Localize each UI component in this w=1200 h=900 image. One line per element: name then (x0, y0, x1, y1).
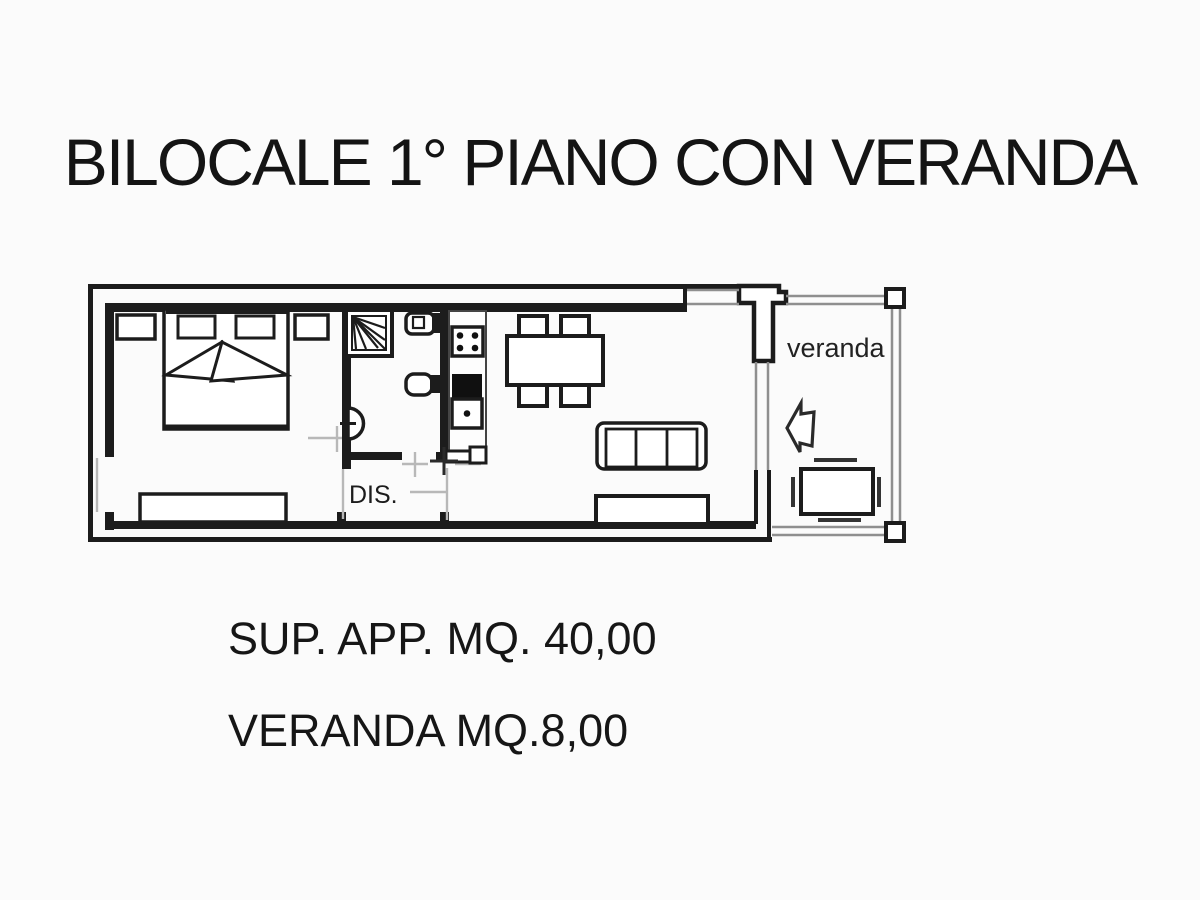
sideboard-symbol (596, 496, 708, 524)
veranda-post-bottom (886, 523, 904, 541)
sofa-cushions (606, 429, 697, 467)
wall-left-outer (88, 284, 93, 542)
nightstand-right-symbol (295, 315, 328, 339)
wall-left-inner (105, 303, 114, 457)
veranda-area (787, 403, 879, 520)
wall-right-inner-low (754, 470, 758, 524)
wall-pier-t (739, 286, 786, 361)
bidet-tank (430, 375, 440, 393)
kitchen-sink-symbol (452, 374, 482, 399)
dresser-symbol (140, 494, 286, 522)
bathroom (340, 310, 442, 439)
toilet-tank (432, 313, 442, 333)
veranda-table-symbol (801, 469, 873, 514)
nightstand-left-symbol (117, 315, 155, 339)
bed-headboard (166, 307, 287, 314)
dining-table-symbol (507, 336, 603, 385)
veranda-post-top (886, 289, 904, 307)
wall-bottom-outer (88, 537, 772, 542)
bed-pillow-left (178, 316, 215, 338)
veranda-label: veranda (787, 333, 886, 363)
entrance-arrow-icon (787, 403, 814, 452)
bedroom (117, 307, 328, 522)
wall-right-outer-low (767, 470, 771, 539)
wall-bathroom-jamb (342, 452, 351, 469)
apartment-area-caption: SUP. APP. MQ. 40,00 (228, 616, 657, 661)
bed-pillow-right (236, 316, 274, 338)
hallway-label: DIS. (349, 481, 398, 509)
floor-plan-drawing: DIS. veranda (0, 0, 1200, 900)
door-jamb-bedroom (337, 512, 346, 521)
cabinet-symbol (470, 447, 486, 463)
toilet-bowl (413, 317, 424, 328)
appliance-knob (464, 410, 471, 417)
stove-symbol (452, 327, 483, 356)
bidet-symbol (406, 374, 432, 395)
wall-top-window-cap (683, 284, 687, 312)
living-room (507, 316, 708, 524)
wall-top-outer (88, 284, 739, 289)
veranda-area-caption: VERANDA MQ.8,00 (228, 708, 628, 753)
